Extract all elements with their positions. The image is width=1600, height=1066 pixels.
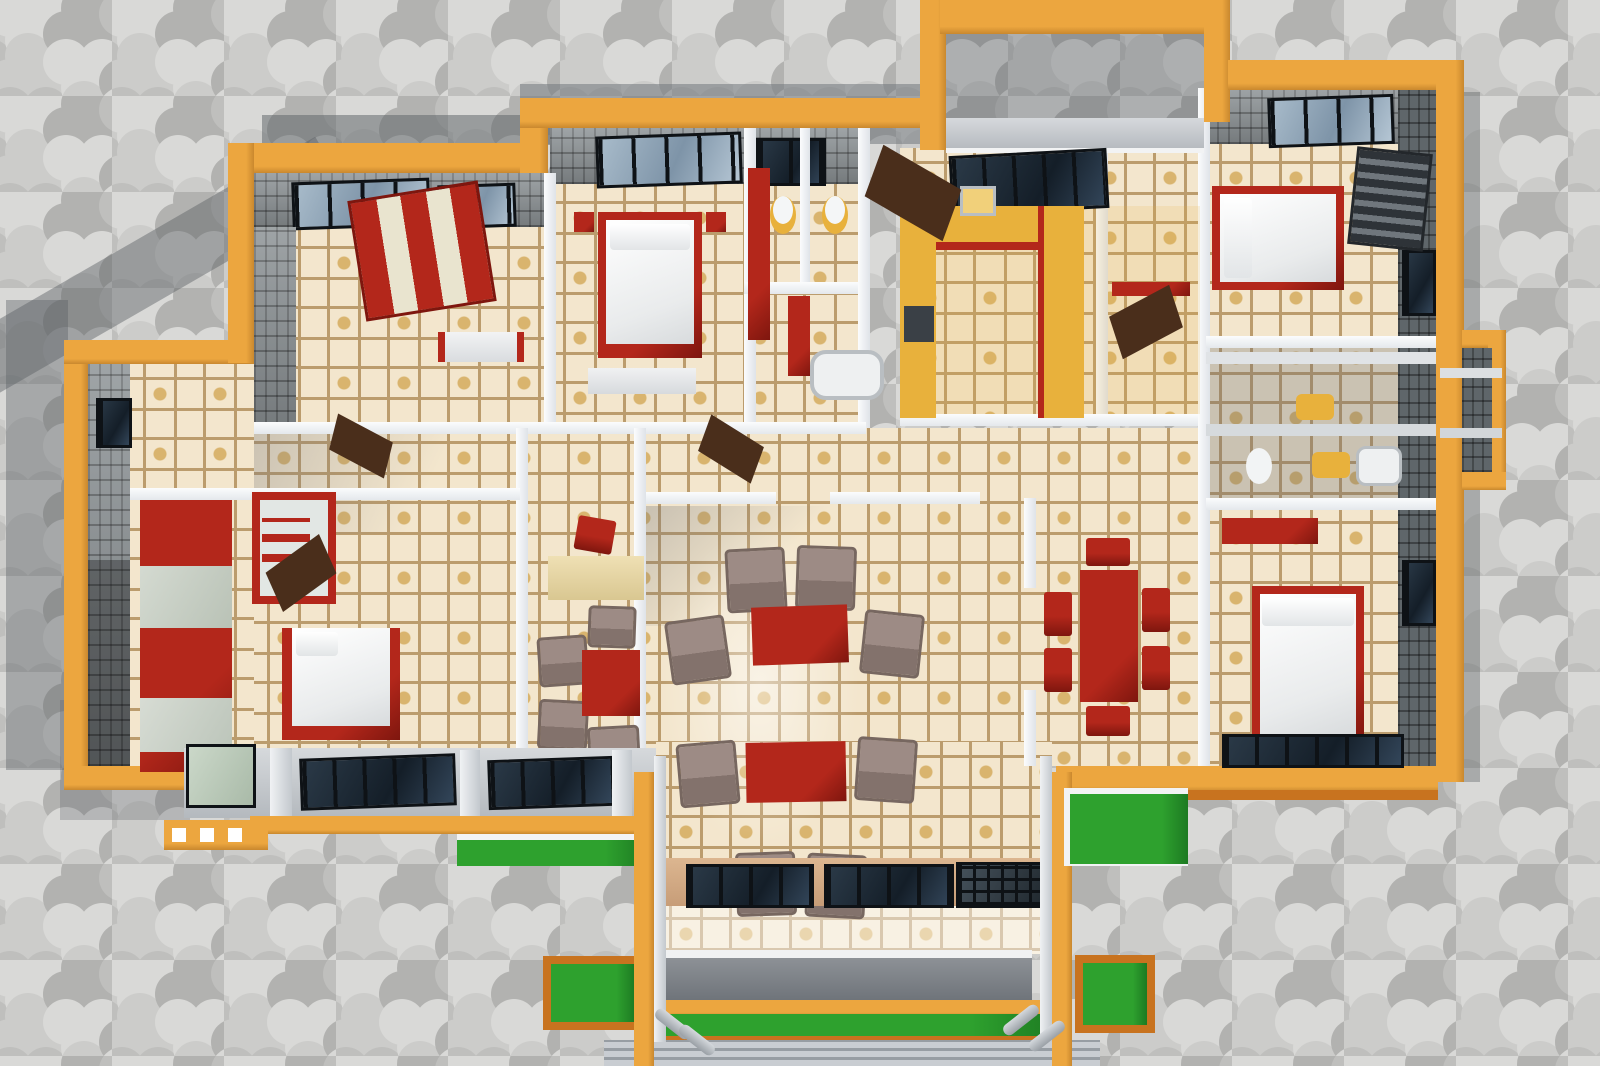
- dining-chair-e2: [1142, 646, 1170, 690]
- porch-column-left-orange: [634, 772, 654, 1066]
- bed3-pillow: [1224, 198, 1252, 278]
- left-porch-column-2: [460, 750, 480, 818]
- left-porch-window-2: [487, 756, 615, 810]
- dresser-r1: [438, 332, 524, 362]
- study-desk-chair: [573, 515, 616, 555]
- coffee-table-2: [745, 741, 846, 803]
- window-north-b1: [595, 131, 743, 188]
- cap-east: [1436, 60, 1464, 782]
- wall-dining-stub-2: [1024, 690, 1036, 766]
- window-br3-sill: [1222, 734, 1404, 768]
- toilet1-bowl: [773, 196, 793, 224]
- wall-dining-stub-1: [1024, 498, 1036, 588]
- bathtub-right: [1356, 446, 1402, 486]
- wall-baths-south: [1206, 498, 1436, 510]
- bed1-pillow: [296, 632, 338, 656]
- bath-toilet: [1246, 448, 1272, 484]
- toilet2-bowl: [825, 196, 845, 224]
- wall-living-north-2: [830, 492, 980, 504]
- bed2-side-left: [574, 212, 594, 232]
- vent-block-2: [200, 828, 214, 842]
- entry-steps: [604, 1040, 1100, 1066]
- bed4-pillow: [1262, 598, 1354, 626]
- cap-courtyard-top: [940, 0, 1230, 34]
- study-chair-3: [587, 605, 636, 649]
- lawn-right-lower: [1083, 963, 1147, 1025]
- dining-table: [1080, 570, 1138, 702]
- dresser-r2: [588, 368, 696, 394]
- coffee-table-1: [751, 604, 849, 665]
- lawn-patch-left: [551, 964, 635, 1022]
- cap-top-b: [520, 98, 924, 128]
- armchair-5: [675, 740, 740, 809]
- left-porch-column-1: [270, 748, 292, 818]
- porch-step-lip: [664, 950, 1032, 958]
- balcony-ledge-1: [1440, 368, 1502, 378]
- wardrobe-striped: [347, 180, 496, 321]
- left-porch-fascia: [250, 816, 656, 834]
- porch-column-left: [654, 756, 666, 1042]
- armchair-1: [724, 546, 787, 613]
- left-porch-glass: [186, 744, 256, 808]
- cap-west-wing: [64, 340, 88, 790]
- bath-sink-2: [1312, 452, 1350, 478]
- cap-balcony-bottom: [1462, 472, 1506, 490]
- dining-chair-s: [1086, 706, 1130, 736]
- cap-top-a: [228, 143, 546, 173]
- wall-toilet-divider: [800, 128, 810, 288]
- bath-ledge-2: [1206, 424, 1436, 436]
- cap-topleft-west: [228, 143, 254, 363]
- render-canvas: [0, 0, 1600, 1066]
- window-north-d: [1267, 94, 1395, 148]
- armchair-3: [664, 614, 732, 686]
- bed2-pillow: [610, 224, 690, 250]
- balcony-brick: [1462, 348, 1492, 472]
- lawn-right-upper: [1070, 794, 1188, 864]
- armchair-6: [854, 736, 918, 804]
- cap-courtyard-right: [1204, 0, 1230, 122]
- dining-chair-w2: [1044, 648, 1072, 692]
- hall-wardrobe-strip: [788, 296, 810, 376]
- study-desk: [548, 556, 644, 600]
- kitchen-counter-right-edge: [1038, 206, 1044, 418]
- dining-chair-n: [1086, 538, 1130, 566]
- porch-window-grid: [956, 862, 1046, 908]
- porch-column-right: [1040, 756, 1052, 1042]
- courtyard-slab: [946, 118, 1204, 150]
- kitchen-sink: [960, 186, 996, 216]
- porch-window-2: [824, 864, 954, 908]
- cap-top-c: [1228, 60, 1440, 90]
- kitchen-appliance: [904, 306, 934, 342]
- wall-study-west: [516, 428, 528, 766]
- balcony-ledge-2: [1440, 428, 1502, 438]
- armchair-2: [795, 545, 857, 611]
- dining-chair-w1: [1044, 592, 1072, 636]
- brick-west-topleft: [254, 227, 296, 427]
- wall-living-north-1: [646, 492, 776, 504]
- window-west-wing: [96, 398, 132, 448]
- dining-chair-e1: [1142, 588, 1170, 632]
- lawn-strip: [457, 840, 647, 866]
- cap-wing-top: [64, 340, 254, 364]
- armchair-4: [859, 609, 925, 679]
- master-wardrobe-glass-1: [140, 566, 232, 628]
- porch-window-1: [686, 864, 814, 908]
- window-east-1: [1402, 250, 1436, 316]
- vent-block-3: [228, 828, 242, 842]
- wall-r1-r2: [544, 173, 556, 428]
- wardrobe-br3: [1222, 518, 1318, 544]
- wall-br2-south: [1206, 336, 1436, 348]
- bath-sink-1: [1296, 394, 1334, 420]
- bath-ledge-1: [1206, 352, 1436, 364]
- louver-unit: [1347, 146, 1433, 251]
- bed2-side-right: [706, 212, 726, 232]
- vent-block-1: [172, 828, 186, 842]
- window-east-2: [1402, 560, 1436, 626]
- wc-wardrobe-strip: [748, 168, 770, 340]
- bathtub-center: [810, 350, 884, 400]
- porch-long-step: [664, 958, 1032, 1000]
- left-porch-window-1: [299, 753, 457, 810]
- kitchen-counter-right: [1044, 206, 1084, 418]
- study-table: [582, 650, 640, 716]
- left-porch-column-3: [612, 750, 632, 818]
